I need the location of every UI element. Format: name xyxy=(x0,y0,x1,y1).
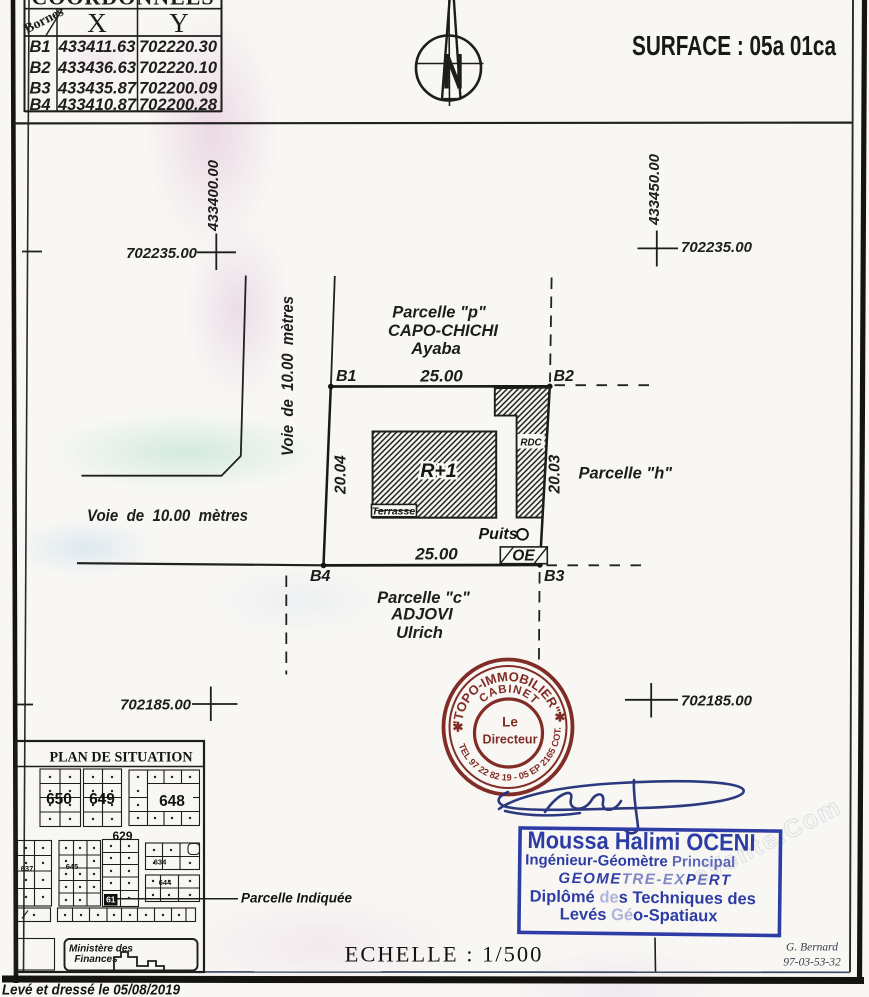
svg-text:OE: OE xyxy=(512,548,535,565)
svg-text:Voie de 10.00 mètres: Voie de 10.00 mètres xyxy=(87,506,248,525)
svg-text:61: 61 xyxy=(106,895,116,905)
svg-text:G. Bernard: G. Bernard xyxy=(786,942,838,954)
svg-text:B1: B1 xyxy=(336,368,357,385)
svg-text:645: 645 xyxy=(66,862,79,871)
svg-text:433436.63: 433436.63 xyxy=(57,59,136,77)
svg-text:20.04: 20.04 xyxy=(333,455,350,495)
svg-text:Ulrich: Ulrich xyxy=(396,624,443,642)
svg-text:702185.00: 702185.00 xyxy=(120,697,192,714)
svg-text:B2: B2 xyxy=(29,59,50,77)
svg-text:Voie de 10.00 mètres: Voie de 10.00 mètres xyxy=(278,296,297,456)
svg-text:648: 648 xyxy=(159,793,185,810)
svg-text:637: 637 xyxy=(21,864,34,873)
svg-text:25.00: 25.00 xyxy=(414,545,458,564)
svg-text:Ayaba: Ayaba xyxy=(410,340,461,358)
svg-text:433410.87: 433410.87 xyxy=(57,96,137,114)
svg-text:25.00: 25.00 xyxy=(419,367,463,386)
svg-text:RDC: RDC xyxy=(520,438,542,449)
svg-text:97-03-53-32: 97-03-53-32 xyxy=(783,957,841,969)
svg-text:ADJOVI: ADJOVI xyxy=(390,606,453,624)
svg-text:Ingénieur-Géomètre Principal: Ingénieur-Géomètre Principal xyxy=(525,851,735,871)
svg-text:Parcelle Indiquée: Parcelle Indiquée xyxy=(241,891,353,906)
svg-text:702200.28: 702200.28 xyxy=(139,96,218,114)
svg-text:433400.00: 433400.00 xyxy=(205,159,222,232)
svg-text:B3: B3 xyxy=(544,568,565,585)
svg-text:Finances: Finances xyxy=(74,954,118,965)
svg-text:702220.10: 702220.10 xyxy=(139,59,218,77)
svg-text:PLAN DE SITUATION: PLAN DE SITUATION xyxy=(50,750,194,766)
svg-text:702220.30: 702220.30 xyxy=(139,38,218,56)
svg-text:B4: B4 xyxy=(29,96,50,114)
svg-text:GEOMETRE-EXPERT: GEOMETRE-EXPERT xyxy=(558,870,732,889)
svg-text:433435.87: 433435.87 xyxy=(57,80,137,98)
svg-text:Parcelle "c": Parcelle "c" xyxy=(377,589,470,607)
svg-text:433411.63: 433411.63 xyxy=(58,38,136,56)
svg-text:644: 644 xyxy=(159,878,172,887)
svg-text:20.03: 20.03 xyxy=(547,454,564,494)
svg-text:Y: Y xyxy=(169,8,189,38)
svg-text:634: 634 xyxy=(154,858,167,867)
svg-text:B2: B2 xyxy=(554,368,575,385)
svg-text:Parcelle "h": Parcelle "h" xyxy=(579,465,673,483)
svg-text:Levé et dressé le 05/08/2019: Levé et dressé le 05/08/2019 xyxy=(2,983,180,997)
svg-text:SURFACE : 05a 01ca: SURFACE : 05a 01ca xyxy=(632,30,836,61)
svg-text:629: 629 xyxy=(112,829,132,843)
svg-text:✱: ✱ xyxy=(555,710,566,725)
svg-text:702235.00: 702235.00 xyxy=(681,239,753,256)
svg-text:433450.00: 433450.00 xyxy=(646,153,663,226)
svg-text:R+1: R+1 xyxy=(420,460,456,482)
svg-text:702200.09: 702200.09 xyxy=(139,80,218,98)
svg-text:B3: B3 xyxy=(29,80,50,98)
svg-text:✱: ✱ xyxy=(453,720,464,735)
svg-text:B1: B1 xyxy=(29,38,50,56)
svg-text:B4: B4 xyxy=(310,568,331,585)
svg-text:Levés Géo-Spatiaux: Levés Géo-Spatiaux xyxy=(560,905,719,925)
svg-text:Le: Le xyxy=(502,715,518,730)
svg-text:X: X xyxy=(87,8,107,38)
svg-text:Terrasse: Terrasse xyxy=(372,505,416,517)
svg-text:702235.00: 702235.00 xyxy=(126,245,198,262)
svg-text:ECHELLE : 1/500: ECHELLE : 1/500 xyxy=(345,942,544,967)
svg-text:Directeur: Directeur xyxy=(483,733,538,747)
svg-text:702185.00: 702185.00 xyxy=(681,693,753,710)
svg-text:CAPO-CHICHI: CAPO-CHICHI xyxy=(388,322,498,340)
svg-text:Puits: Puits xyxy=(479,526,518,543)
svg-text:Parcelle "p": Parcelle "p" xyxy=(392,304,486,322)
